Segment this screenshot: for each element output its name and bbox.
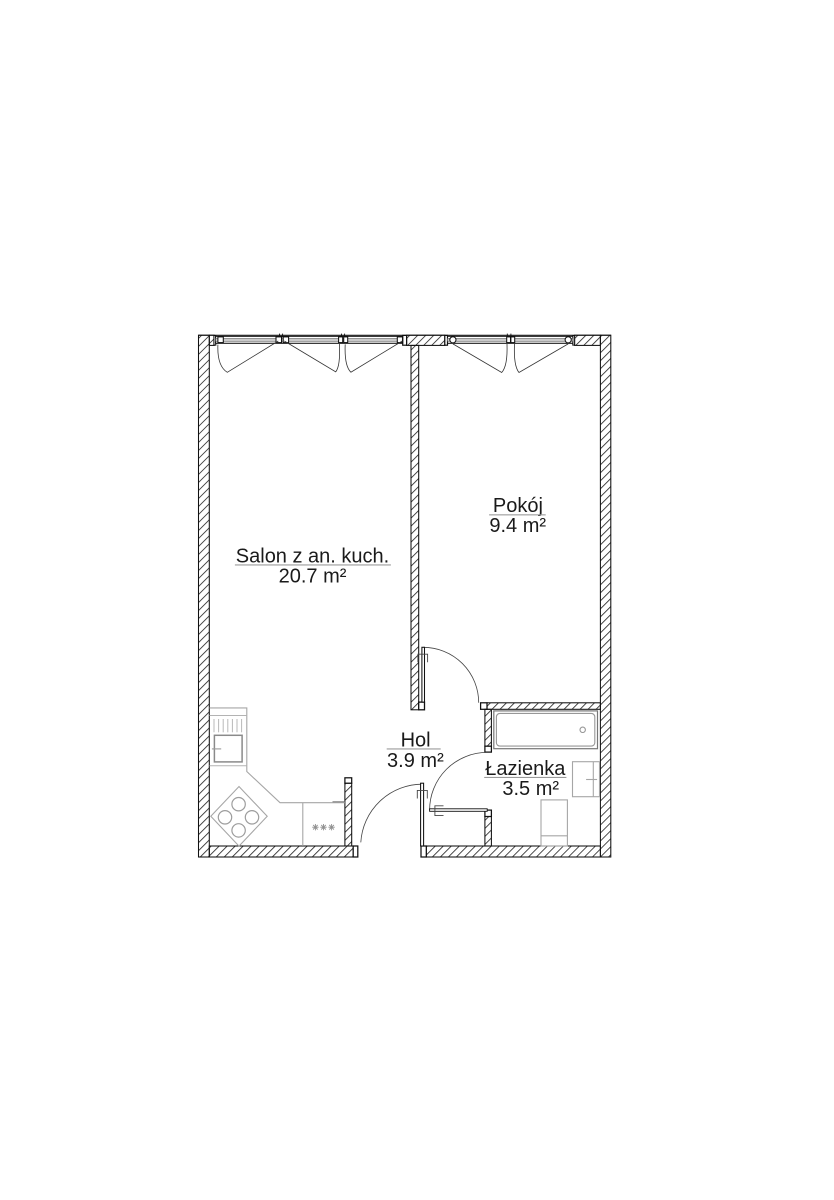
svg-text:Salon z an. kuch.: Salon z an. kuch. — [236, 545, 389, 567]
svg-text:20.7 m²: 20.7 m² — [279, 565, 347, 587]
svg-text:9.4 m²: 9.4 m² — [489, 515, 546, 537]
svg-text:3.9 m²: 3.9 m² — [387, 750, 444, 772]
svg-text:Łazienka: Łazienka — [485, 758, 566, 780]
svg-text:Hol: Hol — [401, 729, 431, 751]
svg-text:Pokój: Pokój — [493, 495, 543, 517]
svg-text:3.5 m²: 3.5 m² — [502, 778, 559, 800]
